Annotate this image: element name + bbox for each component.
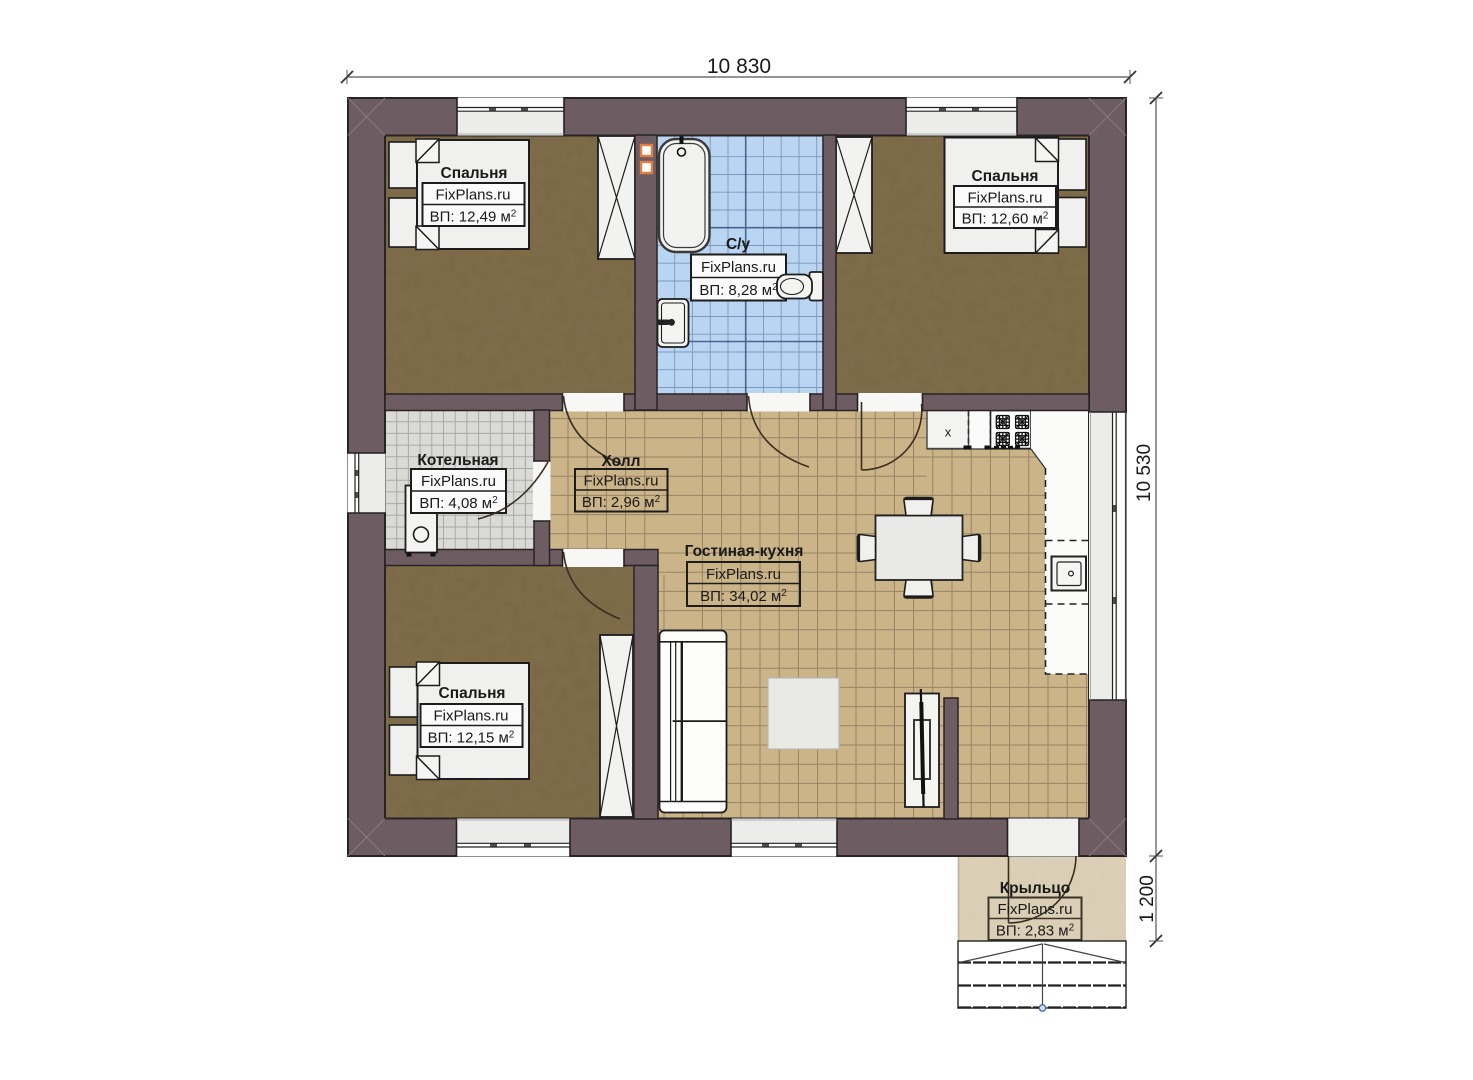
svg-text:10 830: 10 830 — [707, 55, 771, 78]
svg-text:FixPlans.ru: FixPlans.ru — [433, 708, 508, 725]
svg-text:ВП: 12,49 м2: ВП: 12,49 м2 — [430, 209, 517, 226]
svg-text:10 530: 10 530 — [1134, 444, 1155, 502]
svg-text:Спальня: Спальня — [439, 685, 506, 702]
svg-text:FixPlans.ru: FixPlans.ru — [997, 901, 1072, 918]
svg-text:Спальня: Спальня — [441, 165, 508, 182]
svg-text:С/у: С/у — [726, 236, 751, 253]
svg-text:ВП: 2,96 м2: ВП: 2,96 м2 — [582, 494, 661, 511]
svg-text:FixPlans.ru: FixPlans.ru — [583, 473, 658, 490]
svg-text:Гостиная-кухня: Гостиная-кухня — [685, 543, 804, 560]
svg-text:ВП: 12,15 м2: ВП: 12,15 м2 — [428, 730, 515, 747]
svg-text:FixPlans.ru: FixPlans.ru — [421, 473, 496, 490]
svg-text:FixPlans.ru: FixPlans.ru — [706, 566, 781, 583]
svg-text:Спальня: Спальня — [972, 168, 1039, 185]
svg-text:Котельная: Котельная — [417, 452, 498, 469]
svg-text:ВП: 34,02 м2: ВП: 34,02 м2 — [700, 588, 787, 605]
svg-text:ВП: 2,83 м2: ВП: 2,83 м2 — [996, 923, 1075, 940]
svg-text:1 200: 1 200 — [1137, 875, 1158, 923]
svg-text:ВП: 4,08 м2: ВП: 4,08 м2 — [419, 495, 498, 512]
svg-text:x: x — [945, 425, 952, 440]
svg-text:FixPlans.ru: FixPlans.ru — [967, 190, 1042, 207]
svg-text:FixPlans.ru: FixPlans.ru — [435, 187, 510, 204]
svg-text:ВП: 12,60 м2: ВП: 12,60 м2 — [962, 211, 1049, 228]
svg-text:ВП: 8,28 м2: ВП: 8,28 м2 — [699, 282, 778, 299]
svg-text:Крыльцо: Крыльцо — [1000, 880, 1071, 897]
svg-text:FixPlans.ru: FixPlans.ru — [701, 259, 776, 276]
svg-text:Холл: Холл — [602, 453, 641, 470]
